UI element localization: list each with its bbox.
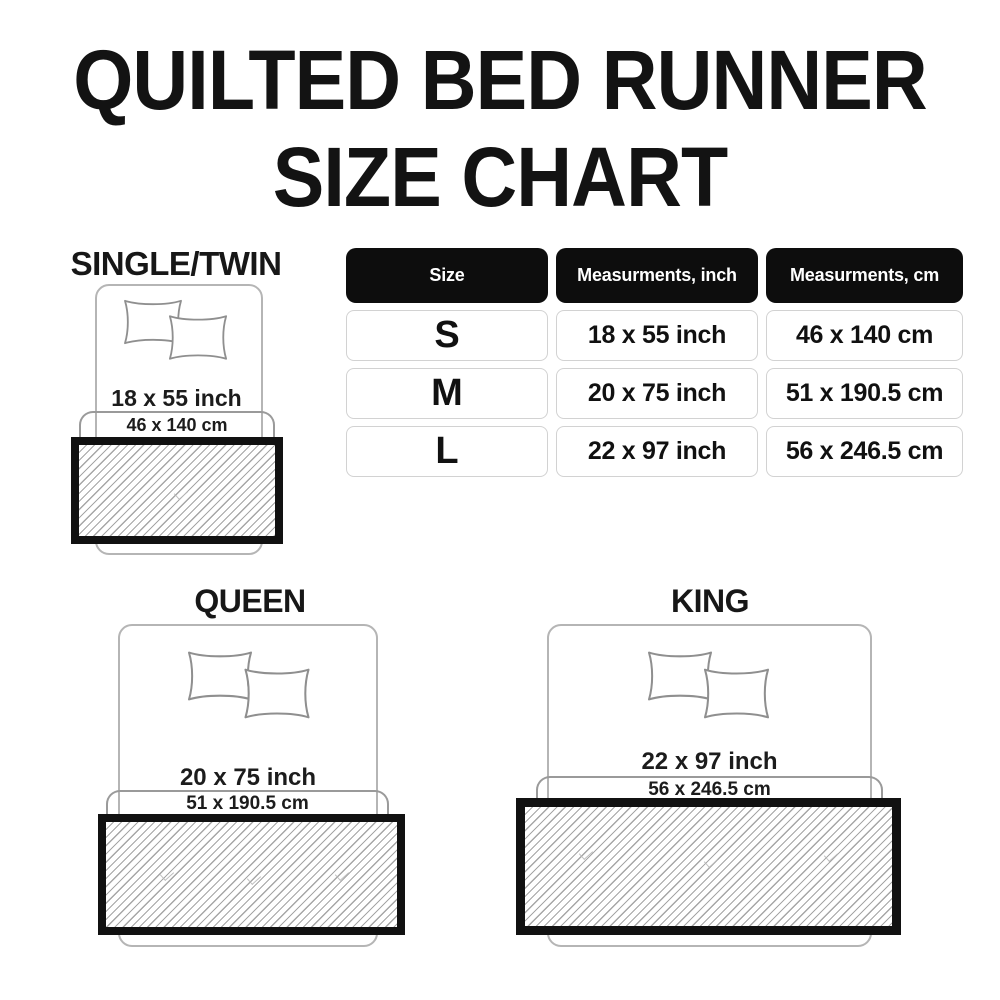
diagram-queen-label: QUEEN xyxy=(128,583,372,620)
table-cell-inch: 22 x 97 inch xyxy=(556,426,758,477)
table-cell-inch: 20 x 75 inch xyxy=(556,368,758,419)
stitch-mark-icon xyxy=(335,867,349,881)
bed-runner-swatch xyxy=(516,798,901,935)
diagram-king-label: KING xyxy=(588,583,832,620)
inch-measurement: 22 x 97 inch xyxy=(547,748,872,776)
bed-runner-swatch xyxy=(98,814,405,935)
stitch-mark-icon xyxy=(824,848,838,862)
inch-measurement: 20 x 75 inch xyxy=(118,764,378,792)
table-cell-inch: 18 x 55 inch xyxy=(556,310,758,361)
page-title-line2: SIZE CHART xyxy=(40,129,960,226)
pillow-icon xyxy=(160,309,236,366)
cm-measurement: 46 x 140 cm xyxy=(79,415,275,436)
page-title-line1: QUILTED BED RUNNER xyxy=(40,32,960,129)
size-chart-page: QUILTED BED RUNNER SIZE CHART SINGLE/TWI… xyxy=(0,0,1000,1000)
table-cell-size: S xyxy=(346,310,548,361)
size-table: Size Measurments, inch Measurments, cm S… xyxy=(346,248,963,477)
stitch-mark-icon xyxy=(704,854,718,868)
table-cell-size: M xyxy=(346,368,548,419)
pillow-icon xyxy=(693,662,780,725)
stitch-mark-icon xyxy=(174,486,188,500)
table-cell-cm: 46 x 140 cm xyxy=(766,310,963,361)
column-header-cm: Measurments, cm xyxy=(766,248,963,303)
bed-runner-swatch xyxy=(71,437,283,544)
stitch-mark-icon xyxy=(160,867,174,881)
stitch-mark-icon xyxy=(247,871,261,885)
table-cell-size: L xyxy=(346,426,548,477)
column-header-inch: Measurments, inch xyxy=(556,248,758,303)
page-title: QUILTED BED RUNNER SIZE CHART xyxy=(40,32,960,226)
column-header-size: Size xyxy=(346,248,548,303)
table-cell-cm: 56 x 246.5 cm xyxy=(766,426,963,477)
cm-measurement: 51 x 190.5 cm xyxy=(106,793,389,815)
diagram-single-twin-label: SINGLE/TWIN xyxy=(40,245,312,283)
stitch-mark-icon xyxy=(579,846,593,860)
inch-measurement: 18 x 55 inch xyxy=(90,385,263,412)
table-cell-cm: 51 x 190.5 cm xyxy=(766,368,963,419)
pillow-icon xyxy=(233,662,321,725)
